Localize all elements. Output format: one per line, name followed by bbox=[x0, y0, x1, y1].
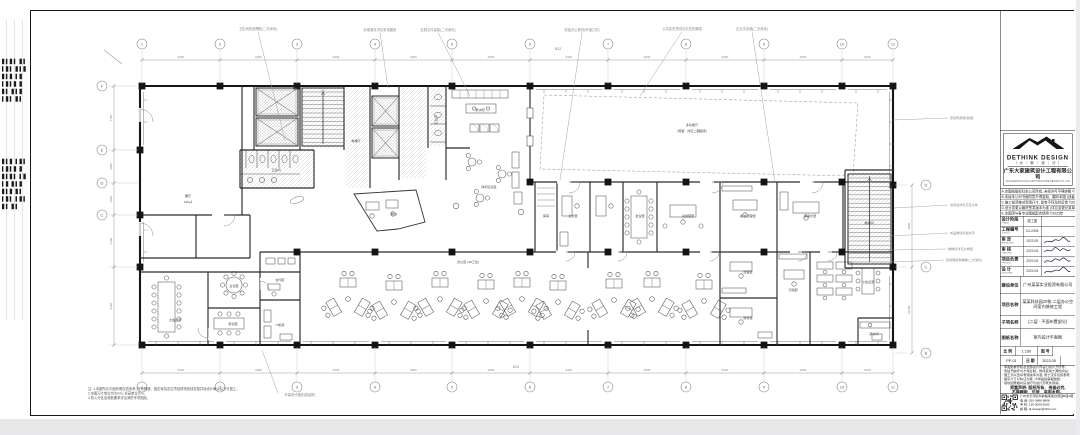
svg-text:10: 10 bbox=[840, 42, 845, 47]
svg-text:6: 6 bbox=[529, 385, 532, 390]
svg-text:9400: 9400 bbox=[566, 55, 573, 59]
signature-label: 审 定APPROVED bbox=[1001, 237, 1024, 247]
svg-text:9400: 9400 bbox=[109, 302, 113, 309]
info-value: 某某科技园1#栋 二层办公空间室内装修工程 bbox=[1021, 294, 1076, 316]
svg-text:9400: 9400 bbox=[333, 55, 340, 59]
project-info-row: 项目名称 某某科技园1#栋 二层办公空间室内装修工程 bbox=[1001, 294, 1076, 316]
info-value: 室内设计平面图 bbox=[1021, 329, 1076, 347]
svg-text:(预留 · 详见二期图纸): (预留 · 详见二期图纸) bbox=[677, 128, 707, 133]
signature-label: 设计阶段PHASE bbox=[1001, 217, 1024, 227]
signature-row: 设 计DESIGNED 2023.05 bbox=[1001, 267, 1076, 277]
svg-text:机电管井详见机电图纸: 机电管井详见机电图纸 bbox=[364, 27, 398, 32]
info-value: 广州某某实业投资有限公司 bbox=[1021, 277, 1076, 294]
svg-text:9300: 9300 bbox=[410, 368, 417, 372]
svg-text:D: D bbox=[101, 181, 104, 186]
svg-text:B: B bbox=[925, 351, 928, 356]
svg-text:2.本图尺寸单位均为mm, 标高单位为m。: 2.本图尺寸单位均为mm, 标高单位为m。 bbox=[88, 391, 147, 396]
signature-date: 2023.05 bbox=[1024, 257, 1042, 267]
info-value: (二层 · 平面布置部分) bbox=[1021, 316, 1076, 329]
svg-text:4: 4 bbox=[374, 385, 377, 390]
svg-text:茶水吧: 茶水吧 bbox=[475, 107, 484, 112]
svg-text:9400: 9400 bbox=[488, 368, 495, 372]
svg-text:6100: 6100 bbox=[864, 55, 871, 59]
desk-cluster bbox=[412, 271, 468, 319]
svg-text:6: 6 bbox=[529, 42, 532, 47]
handwritten-signature bbox=[1042, 237, 1073, 246]
signature-date: 2023.05 bbox=[1024, 267, 1042, 277]
svg-text:11: 11 bbox=[891, 385, 896, 390]
svg-text:5: 5 bbox=[451, 42, 454, 47]
svg-text:楼梯间详见大样图: 楼梯间详见大样图 bbox=[948, 246, 973, 251]
svg-text:7700: 7700 bbox=[109, 114, 113, 121]
svg-text:大会议室: 大会议室 bbox=[169, 317, 181, 322]
handwritten-signature bbox=[1042, 267, 1073, 276]
svg-text:8: 8 bbox=[685, 42, 688, 47]
signature-date: 2023.05 bbox=[1024, 237, 1042, 247]
signature-label: 设 计DESIGNED bbox=[1001, 267, 1024, 277]
svg-text:9400: 9400 bbox=[722, 55, 729, 59]
divider bbox=[1008, 167, 1069, 168]
signature-label: 项目负责PROJECT bbox=[1001, 257, 1024, 267]
svg-text:9400: 9400 bbox=[333, 368, 340, 372]
svg-text:126㎡: 126㎡ bbox=[184, 199, 193, 204]
svg-text:6/12: 6/12 bbox=[513, 365, 519, 369]
svg-text:定制文件高柜(二次深化): 定制文件高柜(二次深化) bbox=[420, 27, 455, 32]
page-margin-right bbox=[1076, 0, 1080, 435]
svg-text:3: 3 bbox=[296, 385, 299, 390]
company-logo-icon bbox=[1004, 134, 1073, 152]
svg-text:培训室: 培训室 bbox=[228, 321, 237, 326]
signature-row: 项目负责PROJECT 2023.05 bbox=[1001, 257, 1076, 267]
svg-text:4: 4 bbox=[374, 42, 377, 47]
signature-field bbox=[1042, 257, 1076, 267]
svg-text:9300: 9300 bbox=[644, 368, 651, 372]
signature-table: 设计阶段PHASE 施工图 工程编号JOB NO. DJ-2305 审 定APP… bbox=[1001, 217, 1076, 277]
signature-field bbox=[1042, 247, 1076, 257]
svg-text:9400: 9400 bbox=[178, 55, 185, 59]
floor-hatches bbox=[240, 88, 893, 266]
svg-text:7: 7 bbox=[607, 42, 610, 47]
signature-label: 工程编号JOB NO. bbox=[1001, 227, 1024, 237]
svg-text:10: 10 bbox=[840, 385, 845, 390]
svg-text:6300: 6300 bbox=[109, 237, 113, 244]
meta-label: 比 例 bbox=[1001, 347, 1016, 357]
svg-text:楼梯间: 楼梯间 bbox=[864, 220, 873, 225]
signature-date: 2023.05 bbox=[1024, 247, 1042, 257]
svg-text:电梯厅: 电梯厅 bbox=[351, 138, 360, 143]
project-info-row: 图纸名称 室内设计平面图 bbox=[1001, 329, 1076, 347]
svg-text:库房: 库房 bbox=[543, 213, 549, 218]
signature-field bbox=[1042, 217, 1076, 227]
signature-row: 审 定APPROVED 2023.05 bbox=[1001, 237, 1076, 247]
meta-value: 2023.05 bbox=[1038, 356, 1061, 366]
svg-text:财务室: 财务室 bbox=[743, 315, 752, 320]
walls-layer bbox=[137, 83, 897, 349]
contact-mail: 邮 箱: dj-design@163.com bbox=[1020, 407, 1073, 411]
svg-text:公共区吊顶详见天花布置图: 公共区吊顶详见天花布置图 bbox=[662, 26, 702, 31]
handwritten-signature bbox=[1042, 257, 1073, 266]
signature-field bbox=[1042, 267, 1076, 277]
svg-text:展厅: 展厅 bbox=[185, 193, 191, 198]
svg-text:9400: 9400 bbox=[178, 368, 185, 372]
signature-date: DJ-2305 bbox=[1024, 227, 1042, 237]
svg-text:9400: 9400 bbox=[722, 368, 729, 372]
svg-text:企业文化墙(二次深化): 企业文化墙(二次深化) bbox=[736, 26, 768, 31]
meta-value: PP-01 bbox=[1001, 356, 1024, 366]
company-name-cn: 广东大家建筑设计工程有限公司 bbox=[1004, 168, 1073, 180]
svg-text:总经理室: 总经理室 bbox=[682, 213, 694, 218]
svg-text:9300: 9300 bbox=[644, 55, 651, 59]
svg-text:董事长室: 董事长室 bbox=[804, 213, 816, 218]
svg-text:办公区 (48工位): 办公区 (48工位) bbox=[457, 259, 479, 264]
desk-cluster bbox=[624, 271, 680, 319]
handwritten-signature bbox=[1042, 247, 1073, 256]
signature-row: 设计阶段PHASE 施工图 bbox=[1001, 217, 1076, 227]
svg-text:10300: 10300 bbox=[907, 305, 911, 314]
notice-rows: A.本图纸版权归本公司所有, 未经许可不得转载 ©2023年B.未经本公司书面同… bbox=[1001, 189, 1076, 217]
svg-text:C: C bbox=[101, 213, 104, 218]
signature-field bbox=[1042, 237, 1076, 247]
desk-cluster bbox=[530, 274, 586, 322]
svg-text:外幕墙分格线(原建筑): 外幕墙分格线(原建筑) bbox=[285, 392, 316, 397]
svg-text:原建筑幕墙(保留): 原建筑幕墙(保留) bbox=[950, 115, 974, 120]
svg-text:9300: 9300 bbox=[255, 368, 262, 372]
svg-text:休闲洽谈区: 休闲洽谈区 bbox=[481, 184, 496, 189]
svg-text:主管室: 主管室 bbox=[568, 213, 577, 218]
svg-text:行政部: 行政部 bbox=[788, 287, 797, 292]
company-logo-cell: DETHINK DESIGN 〔 大 ｜ 家 ｜ 设 ｜ 计 〕 广东大家建筑设… bbox=[1001, 131, 1076, 189]
svg-text:9400: 9400 bbox=[566, 368, 573, 372]
svg-text:11: 11 bbox=[891, 42, 896, 47]
svg-text:3.防火分区及疏散要求详见消防专项图纸。: 3.防火分区及疏散要求详见消防专项图纸。 bbox=[88, 395, 150, 400]
project-info-row: 子项名称 (二层 · 平面布置部分) bbox=[1001, 316, 1076, 329]
svg-text:洽谈室: 洽谈室 bbox=[229, 283, 238, 288]
svg-text:5: 5 bbox=[451, 385, 454, 390]
desk-cluster bbox=[494, 271, 550, 319]
meta-value: 1:150 bbox=[1016, 347, 1039, 357]
svg-text:C: C bbox=[925, 265, 928, 270]
info-label: 项目名称 bbox=[1001, 294, 1021, 316]
page-margin-bottom bbox=[0, 419, 1080, 435]
svg-text:会议室: 会议室 bbox=[635, 213, 644, 218]
svg-text:卫生间: 卫生间 bbox=[271, 167, 280, 172]
svg-text:卫生间成品隔断(二次深化): 卫生间成品隔断(二次深化) bbox=[239, 26, 277, 31]
svg-text:9300: 9300 bbox=[255, 55, 262, 59]
svg-text:E: E bbox=[101, 148, 104, 153]
svg-text:成品玻璃栏板扶手: 成品玻璃栏板扶手 bbox=[950, 230, 975, 235]
meta-grid: 比 例1:150图 号PP-01日 期2023.05版 次A1 bbox=[1001, 347, 1076, 366]
svg-text:8: 8 bbox=[685, 385, 688, 390]
svg-text:IT机房: IT机房 bbox=[276, 322, 285, 327]
meta-label: 图 号 bbox=[1038, 347, 1053, 357]
signature-label: 审 核CHECKED bbox=[1001, 247, 1024, 257]
signature-row: 工程编号JOB NO. DJ-2305 bbox=[1001, 227, 1076, 237]
brand-sub: 〔 大 ｜ 家 ｜ 设 ｜ 计 〕 bbox=[1004, 161, 1073, 166]
legal-notes: · 本图纸著作权及全部设计内容归设计方所有;· 未经书面许可不得复制、修改或用于… bbox=[1001, 366, 1076, 394]
svg-text:9400: 9400 bbox=[800, 368, 807, 372]
signature-date: 施工图 bbox=[1024, 217, 1042, 227]
floor-plan: 1234567891011940093009400930094009400930… bbox=[0, 0, 1080, 435]
svg-text:窗帘盒详见天花大样: 窗帘盒详见天花大样 bbox=[950, 202, 978, 207]
svg-text:D: D bbox=[925, 183, 928, 188]
svg-text:9300: 9300 bbox=[410, 55, 417, 59]
svg-text:成品办公家具(甲指乙供): 成品办公家具(甲指乙供) bbox=[564, 27, 599, 32]
svg-text:9400: 9400 bbox=[488, 55, 495, 59]
svg-text:5/12: 5/12 bbox=[555, 47, 561, 51]
drawing-canvas: ▋▍▋▍ ▋▍▍▋▍ ▋▍▋▋▍▋ ▍▋▍▋▍▋ ▋▋▍ ▋▍▋▍▋▍ ▋▍ ▋… bbox=[0, 0, 1080, 435]
svg-text:3: 3 bbox=[296, 42, 299, 47]
project-info-row: 建设单位 广州某某实业投资有限公司 bbox=[1001, 277, 1076, 294]
title-block: DETHINK DESIGN 〔 大 ｜ 家 ｜ 设 ｜ 计 〕 广东大家建筑设… bbox=[1000, 11, 1075, 414]
info-label: 建设单位 bbox=[1001, 277, 1021, 294]
project-info-table: 建设单位 广州某某实业投资有限公司项目名称 某某科技园1#栋 二层办公空间室内装… bbox=[1001, 277, 1076, 347]
svg-text:副总经理室: 副总经理室 bbox=[740, 213, 755, 218]
desk-cluster bbox=[458, 273, 514, 321]
company-name-en: GUANGDONG DAJIA ARCHITECTURE DESIGN CO.,… bbox=[1004, 180, 1073, 183]
info-label: 子项名称 bbox=[1001, 316, 1021, 329]
svg-text:1: 1 bbox=[141, 42, 144, 47]
svg-text:文印区: 文印区 bbox=[275, 277, 284, 282]
svg-text:9400: 9400 bbox=[800, 55, 807, 59]
svg-text:经理室: 经理室 bbox=[743, 269, 752, 274]
svg-text:加建钢结构楼梯(二次深化): 加建钢结构楼梯(二次深化) bbox=[946, 257, 982, 262]
meta-label: 日 期 bbox=[1023, 356, 1038, 366]
svg-text:3800: 3800 bbox=[109, 195, 113, 202]
qr-code bbox=[1002, 395, 1019, 412]
title-block-empty-cell bbox=[1001, 11, 1076, 131]
svg-text:注: 1.本图所示平面布置仅供参考, 所有隔墙、固定家具定位: 注: 1.本图所示平面布置仅供参考, 所有隔墙、固定家具定位须经现场放线复核并经… bbox=[88, 386, 239, 391]
svg-text:多功能厅: 多功能厅 bbox=[686, 122, 698, 127]
svg-text:9: 9 bbox=[763, 385, 766, 390]
svg-text:4000: 4000 bbox=[109, 163, 113, 170]
svg-text:7: 7 bbox=[607, 385, 610, 390]
desk-cluster bbox=[366, 274, 422, 322]
svg-text:卫生间: 卫生间 bbox=[433, 115, 438, 124]
svg-text:F: F bbox=[101, 84, 104, 89]
svg-text:6100: 6100 bbox=[864, 368, 871, 372]
desk-cluster bbox=[320, 271, 376, 319]
contact-cell: 广州市天河区科韵路某某创意园B座3层 电 话: 020-3888 8888 手 … bbox=[1001, 394, 1076, 415]
svg-text:9: 9 bbox=[763, 42, 766, 47]
svg-text:小会议室: 小会议室 bbox=[862, 279, 874, 284]
info-label: 图纸名称 bbox=[1001, 329, 1021, 347]
svg-text:茶水间: 茶水间 bbox=[869, 331, 878, 336]
signature-field bbox=[1042, 227, 1076, 237]
signature-row: 审 核CHECKED 2023.05 bbox=[1001, 247, 1076, 257]
svg-text:9800: 9800 bbox=[907, 222, 911, 229]
svg-text:前台: 前台 bbox=[391, 211, 397, 216]
svg-text:2: 2 bbox=[219, 42, 222, 47]
